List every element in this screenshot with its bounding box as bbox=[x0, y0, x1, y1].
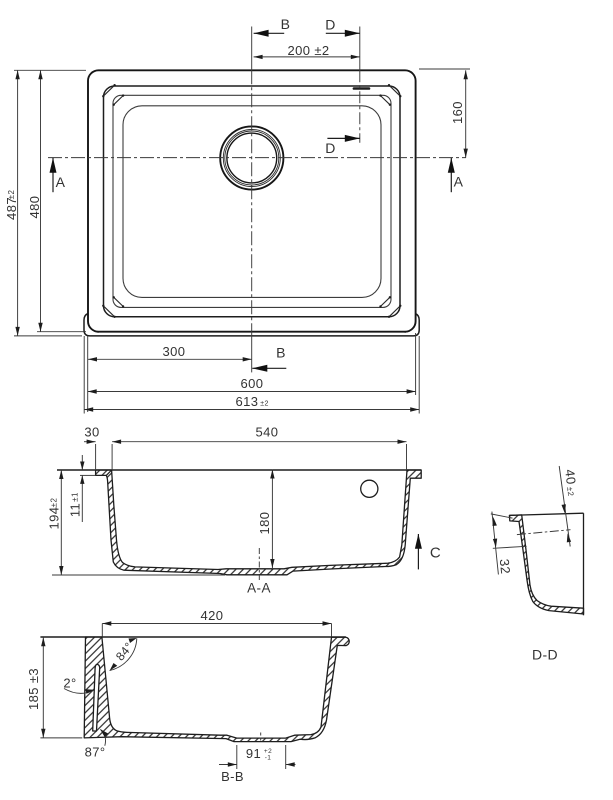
svg-text:2°: 2° bbox=[63, 676, 76, 691]
svg-text:±2: ±2 bbox=[50, 498, 59, 508]
svg-text:194: 194 bbox=[47, 507, 62, 530]
svg-text:±1: ±1 bbox=[71, 492, 80, 502]
svg-text:A-A: A-A bbox=[247, 581, 271, 596]
svg-text:480: 480 bbox=[27, 196, 42, 219]
svg-text:D-D: D-D bbox=[532, 647, 558, 663]
svg-text:D: D bbox=[325, 17, 336, 33]
svg-text:87°: 87° bbox=[85, 745, 106, 760]
svg-text:487: 487 bbox=[4, 197, 19, 220]
svg-text:D: D bbox=[325, 140, 336, 156]
svg-text:±2: ±2 bbox=[7, 190, 16, 200]
svg-text:600: 600 bbox=[241, 376, 264, 391]
svg-text:A: A bbox=[56, 174, 66, 190]
svg-text:420: 420 bbox=[201, 608, 224, 623]
svg-text:32: 32 bbox=[497, 558, 514, 575]
svg-text:C: C bbox=[430, 545, 441, 562]
svg-text:A: A bbox=[454, 174, 464, 190]
svg-text:±2: ±2 bbox=[565, 486, 575, 497]
svg-text:160: 160 bbox=[450, 101, 465, 124]
svg-text:B: B bbox=[281, 16, 291, 32]
svg-text:91: 91 bbox=[246, 746, 261, 761]
svg-text:11: 11 bbox=[68, 503, 83, 517]
svg-text:300: 300 bbox=[163, 344, 186, 359]
svg-text:B: B bbox=[276, 345, 286, 361]
svg-text:30: 30 bbox=[84, 425, 99, 440]
svg-text:-1: -1 bbox=[265, 755, 272, 762]
svg-text:B-B: B-B bbox=[221, 769, 244, 784]
svg-text:540: 540 bbox=[256, 425, 279, 440]
svg-text:185 ±3: 185 ±3 bbox=[26, 668, 41, 710]
svg-text:±2: ±2 bbox=[260, 401, 269, 408]
svg-text:180: 180 bbox=[257, 512, 272, 535]
svg-text:613: 613 bbox=[236, 394, 259, 409]
svg-text:200 ±2: 200 ±2 bbox=[287, 43, 329, 58]
svg-text:40: 40 bbox=[562, 468, 579, 485]
